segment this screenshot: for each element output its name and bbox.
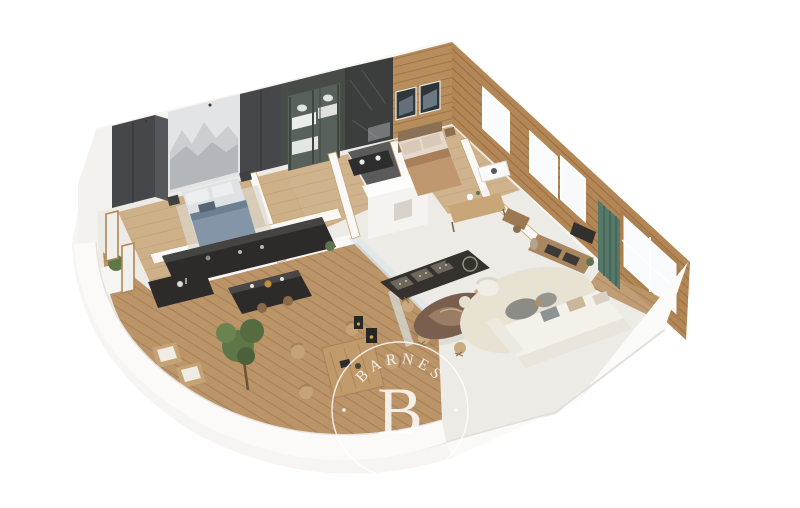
bunk-decal bbox=[323, 95, 333, 102]
bar-stool bbox=[257, 303, 267, 313]
back-wall-cap bbox=[96, 126, 112, 212]
master-wood-wall bbox=[393, 42, 452, 139]
sideboard-plant bbox=[586, 258, 594, 266]
table-bowl bbox=[535, 300, 541, 306]
floor-dot bbox=[446, 261, 449, 264]
bar-stool bbox=[283, 296, 293, 306]
basket bbox=[513, 225, 521, 233]
wardrobe-left-side bbox=[155, 115, 168, 201]
counter-plant bbox=[325, 241, 335, 251]
pouf bbox=[459, 296, 471, 308]
left-window bbox=[106, 211, 118, 261]
floor-plan-render: BARNES B bbox=[0, 0, 800, 508]
amphora-vase bbox=[530, 238, 538, 250]
watermark-monogram: B bbox=[377, 373, 422, 449]
floor-plan-page: BARNES B bbox=[0, 0, 800, 508]
pendant-gold bbox=[264, 280, 271, 287]
flower-vase bbox=[483, 189, 489, 195]
bunk-decal bbox=[297, 105, 307, 112]
floor-dot bbox=[449, 271, 452, 274]
left-window bbox=[122, 243, 134, 293]
marble-bathroom-wall bbox=[345, 57, 393, 150]
ceiling-spot bbox=[209, 104, 212, 107]
wall-art-frame bbox=[420, 81, 440, 114]
sink bbox=[177, 281, 183, 287]
ceiling-spot bbox=[145, 120, 148, 123]
flower-vase bbox=[467, 194, 473, 200]
watermark-dot-right bbox=[454, 408, 458, 412]
watermark-dot-left bbox=[342, 408, 346, 412]
armchair bbox=[477, 278, 499, 296]
wall-art-frame bbox=[396, 87, 416, 120]
